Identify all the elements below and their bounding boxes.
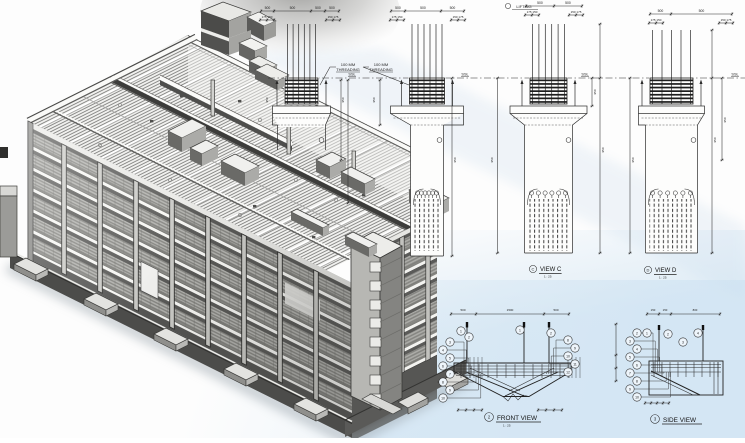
- svg-text:150: 150: [663, 308, 668, 312]
- svg-text:500: 500: [265, 6, 271, 10]
- svg-text:C: C: [532, 267, 535, 272]
- svg-text:500: 500: [315, 6, 321, 10]
- svg-text:9: 9: [629, 387, 631, 391]
- svg-text:SIDE VIEW: SIDE VIEW: [663, 417, 697, 424]
- svg-text:2: 2: [550, 331, 552, 335]
- svg-text:150 175: 150 175: [721, 18, 732, 22]
- svg-text:500: 500: [553, 308, 558, 312]
- svg-text:175 150: 175 150: [651, 18, 662, 22]
- svg-text:SSL: SSL: [461, 73, 468, 77]
- svg-text:6: 6: [442, 364, 444, 368]
- svg-text:950: 950: [265, 97, 269, 102]
- svg-text:950: 950: [723, 117, 727, 122]
- svg-text:500: 500: [420, 6, 426, 10]
- svg-text:1: 1: [646, 331, 648, 335]
- svg-text:12: 12: [566, 370, 570, 374]
- svg-text:4: 4: [636, 347, 638, 351]
- svg-text:11: 11: [573, 362, 577, 366]
- svg-text:10: 10: [441, 396, 445, 400]
- svg-text:500: 500: [329, 6, 335, 10]
- svg-text:950: 950: [713, 137, 717, 142]
- svg-text:VIEW D: VIEW D: [655, 268, 677, 274]
- svg-text:1: 1: [460, 329, 462, 333]
- svg-text:950: 950: [593, 89, 597, 94]
- svg-text:5: 5: [449, 356, 451, 360]
- svg-text:950: 950: [453, 157, 457, 162]
- svg-text:FRONT VIEW: FRONT VIEW: [497, 415, 538, 422]
- svg-text:950: 950: [372, 97, 376, 102]
- svg-text:7: 7: [449, 372, 451, 376]
- svg-text:175 150: 175 150: [392, 15, 403, 19]
- svg-text:3: 3: [629, 339, 631, 343]
- svg-text:10: 10: [566, 354, 570, 358]
- svg-text:1 : 25: 1 : 25: [503, 424, 511, 428]
- svg-text:175 150: 175 150: [527, 10, 538, 14]
- svg-text:2: 2: [667, 332, 669, 336]
- svg-text:SSL: SSL: [731, 73, 738, 77]
- svg-text:10: 10: [635, 395, 639, 399]
- svg-text:8: 8: [567, 338, 569, 342]
- svg-text:8: 8: [636, 379, 638, 383]
- svg-text:SSL: SSL: [348, 73, 355, 77]
- svg-text:6: 6: [636, 363, 638, 367]
- svg-text:150 175: 150 175: [571, 10, 582, 14]
- svg-text:500: 500: [699, 9, 705, 13]
- svg-text:150 175: 150 175: [328, 15, 339, 19]
- svg-text:5: 5: [629, 355, 631, 359]
- svg-text:500: 500: [450, 6, 456, 10]
- svg-text:4: 4: [697, 331, 699, 335]
- svg-text:150 175: 150 175: [453, 15, 464, 19]
- svg-text:150: 150: [651, 308, 656, 312]
- svg-text:7: 7: [629, 371, 631, 375]
- svg-text:2: 2: [468, 335, 470, 339]
- svg-text:1 : 25: 1 : 25: [659, 276, 667, 280]
- svg-text:VIEW C: VIEW C: [540, 267, 562, 273]
- svg-text:500: 500: [537, 1, 543, 5]
- svg-text:1 : 25: 1 : 25: [544, 275, 552, 279]
- svg-text:THREADING: THREADING: [369, 67, 393, 72]
- svg-text:175 150: 175 150: [262, 15, 273, 19]
- svg-text:SSL: SSL: [581, 73, 588, 77]
- svg-text:500: 500: [460, 308, 465, 312]
- svg-text:9: 9: [449, 388, 451, 392]
- svg-text:1: 1: [519, 328, 521, 332]
- svg-text:800: 800: [693, 308, 698, 312]
- svg-text:2: 2: [636, 331, 638, 335]
- svg-text:950: 950: [601, 147, 605, 152]
- svg-text:950: 950: [490, 157, 494, 162]
- svg-text:3: 3: [449, 340, 451, 344]
- svg-text:LIFTING: LIFTING: [516, 4, 531, 9]
- svg-text:500: 500: [565, 1, 571, 5]
- svg-text:950: 950: [631, 157, 635, 162]
- svg-text:3: 3: [682, 340, 684, 344]
- svg-text:9: 9: [574, 346, 576, 350]
- svg-text:950: 950: [341, 97, 345, 102]
- svg-text:THREADING: THREADING: [336, 67, 360, 72]
- svg-text:500: 500: [395, 6, 401, 10]
- svg-text:500: 500: [658, 9, 664, 13]
- svg-text:1500: 1500: [507, 308, 514, 312]
- svg-text:500: 500: [290, 6, 296, 10]
- svg-text:4: 4: [442, 348, 444, 352]
- svg-text:8: 8: [442, 380, 444, 384]
- svg-text:D: D: [647, 268, 650, 273]
